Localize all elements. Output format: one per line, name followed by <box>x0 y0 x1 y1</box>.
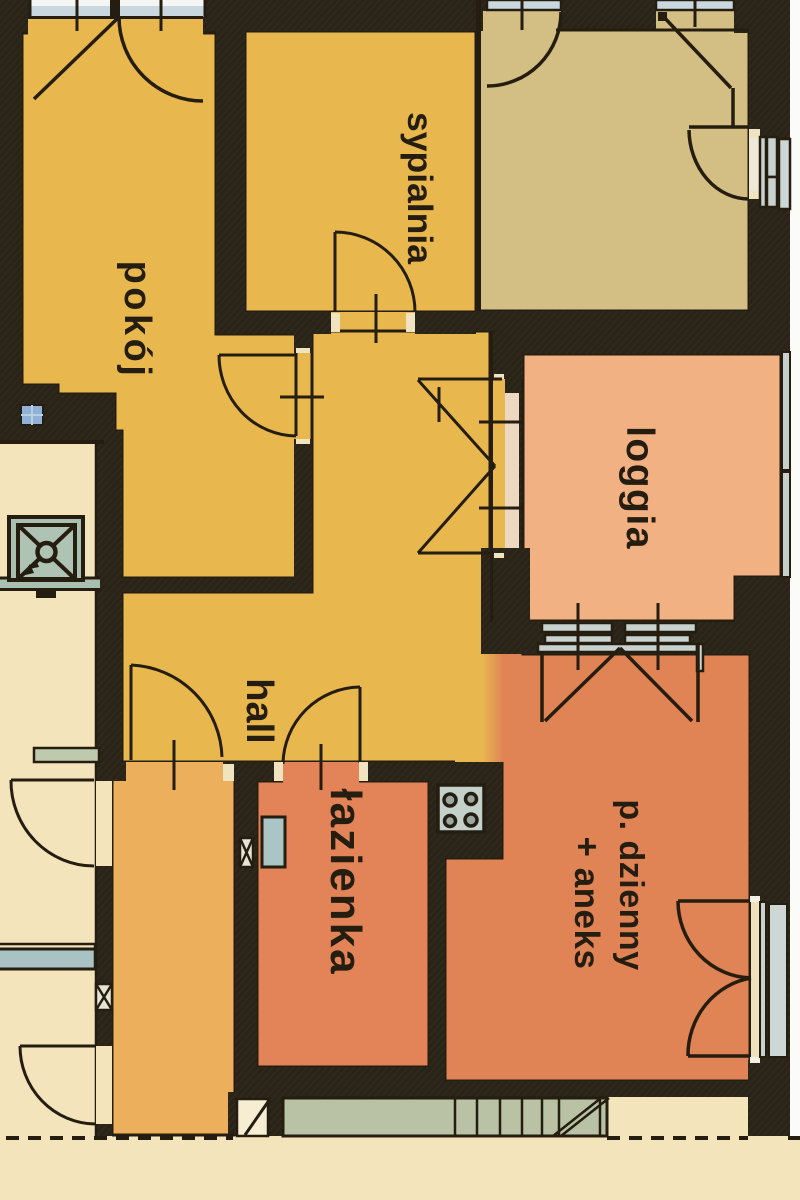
svg-text:hall: hall <box>238 678 280 743</box>
svg-text:+ aneks: + aneks <box>567 837 606 970</box>
svg-text:łazienka: łazienka <box>321 788 370 975</box>
svg-text:p. dzienny: p. dzienny <box>612 799 650 970</box>
svg-text:sypialnia: sypialnia <box>400 112 440 264</box>
svg-text:loggia: loggia <box>618 426 661 550</box>
svg-text:pokój: pokój <box>116 261 158 380</box>
